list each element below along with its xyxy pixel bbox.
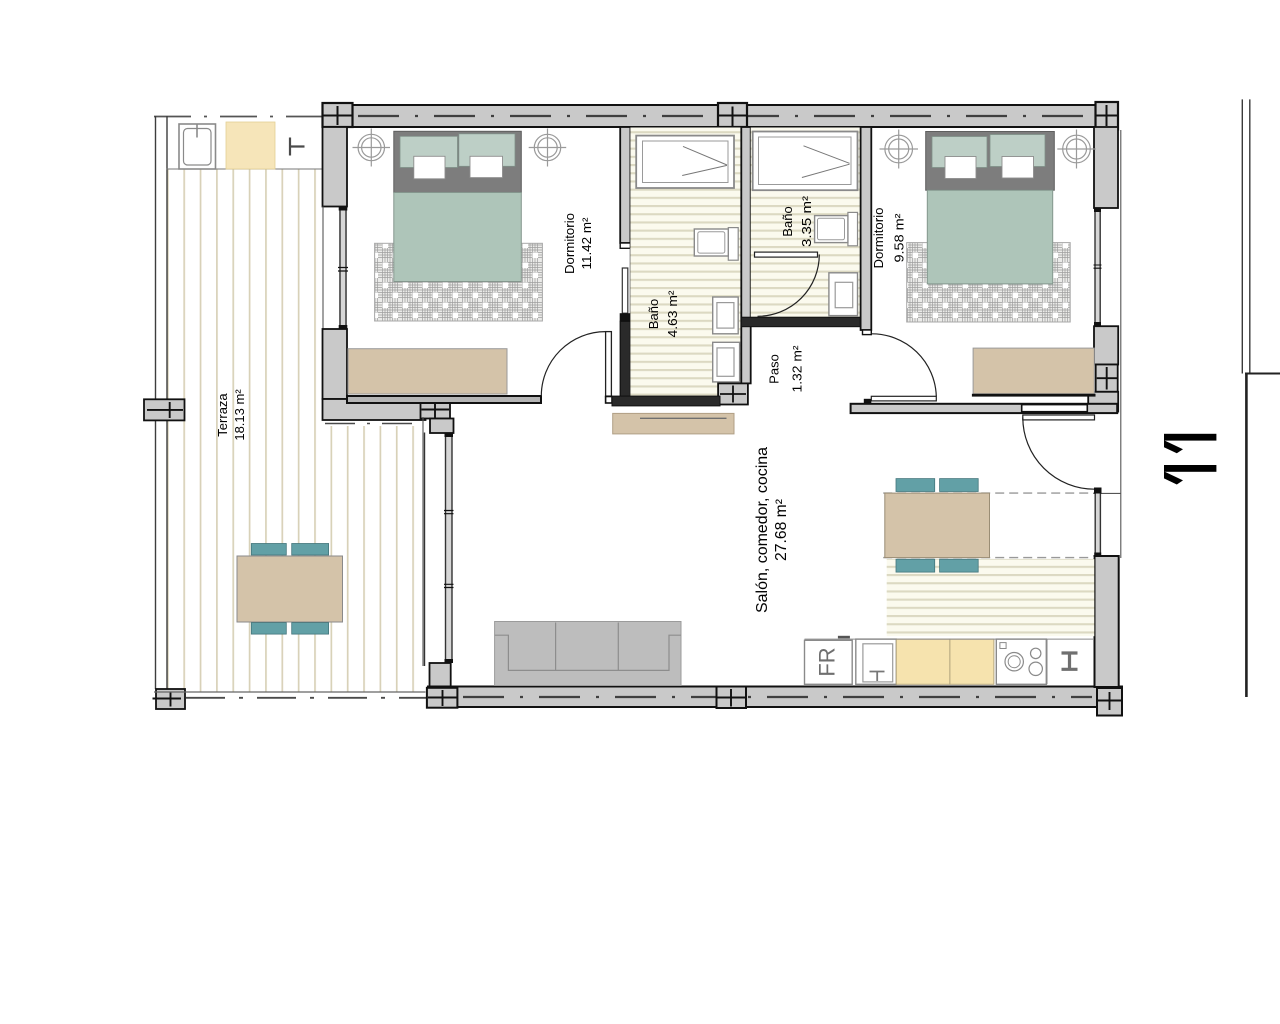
svg-text:Paso: Paso (767, 354, 782, 384)
svg-text:Baño: Baño (646, 299, 661, 329)
svg-text:1.32 m²: 1.32 m² (790, 345, 805, 393)
svg-text:Baño: Baño (780, 206, 795, 236)
svg-text:18.13 m²: 18.13 m² (232, 389, 247, 441)
svg-text:3.35 m²: 3.35 m² (799, 195, 814, 247)
svg-text:27.68 m²: 27.68 m² (773, 499, 790, 561)
svg-text:9.58 m²: 9.58 m² (892, 213, 907, 263)
svg-text:Salón, comedor, cocina: Salón, comedor, cocina (754, 447, 771, 613)
svg-text:FR: FR (814, 647, 839, 676)
svg-text:11.42 m²: 11.42 m² (579, 217, 594, 270)
svg-text:Dormitorio: Dormitorio (562, 213, 577, 274)
svg-text:Dormitorio: Dormitorio (871, 208, 886, 269)
svg-text:Terraza: Terraza (215, 393, 230, 437)
svg-text:4.63 m²: 4.63 m² (665, 290, 680, 338)
